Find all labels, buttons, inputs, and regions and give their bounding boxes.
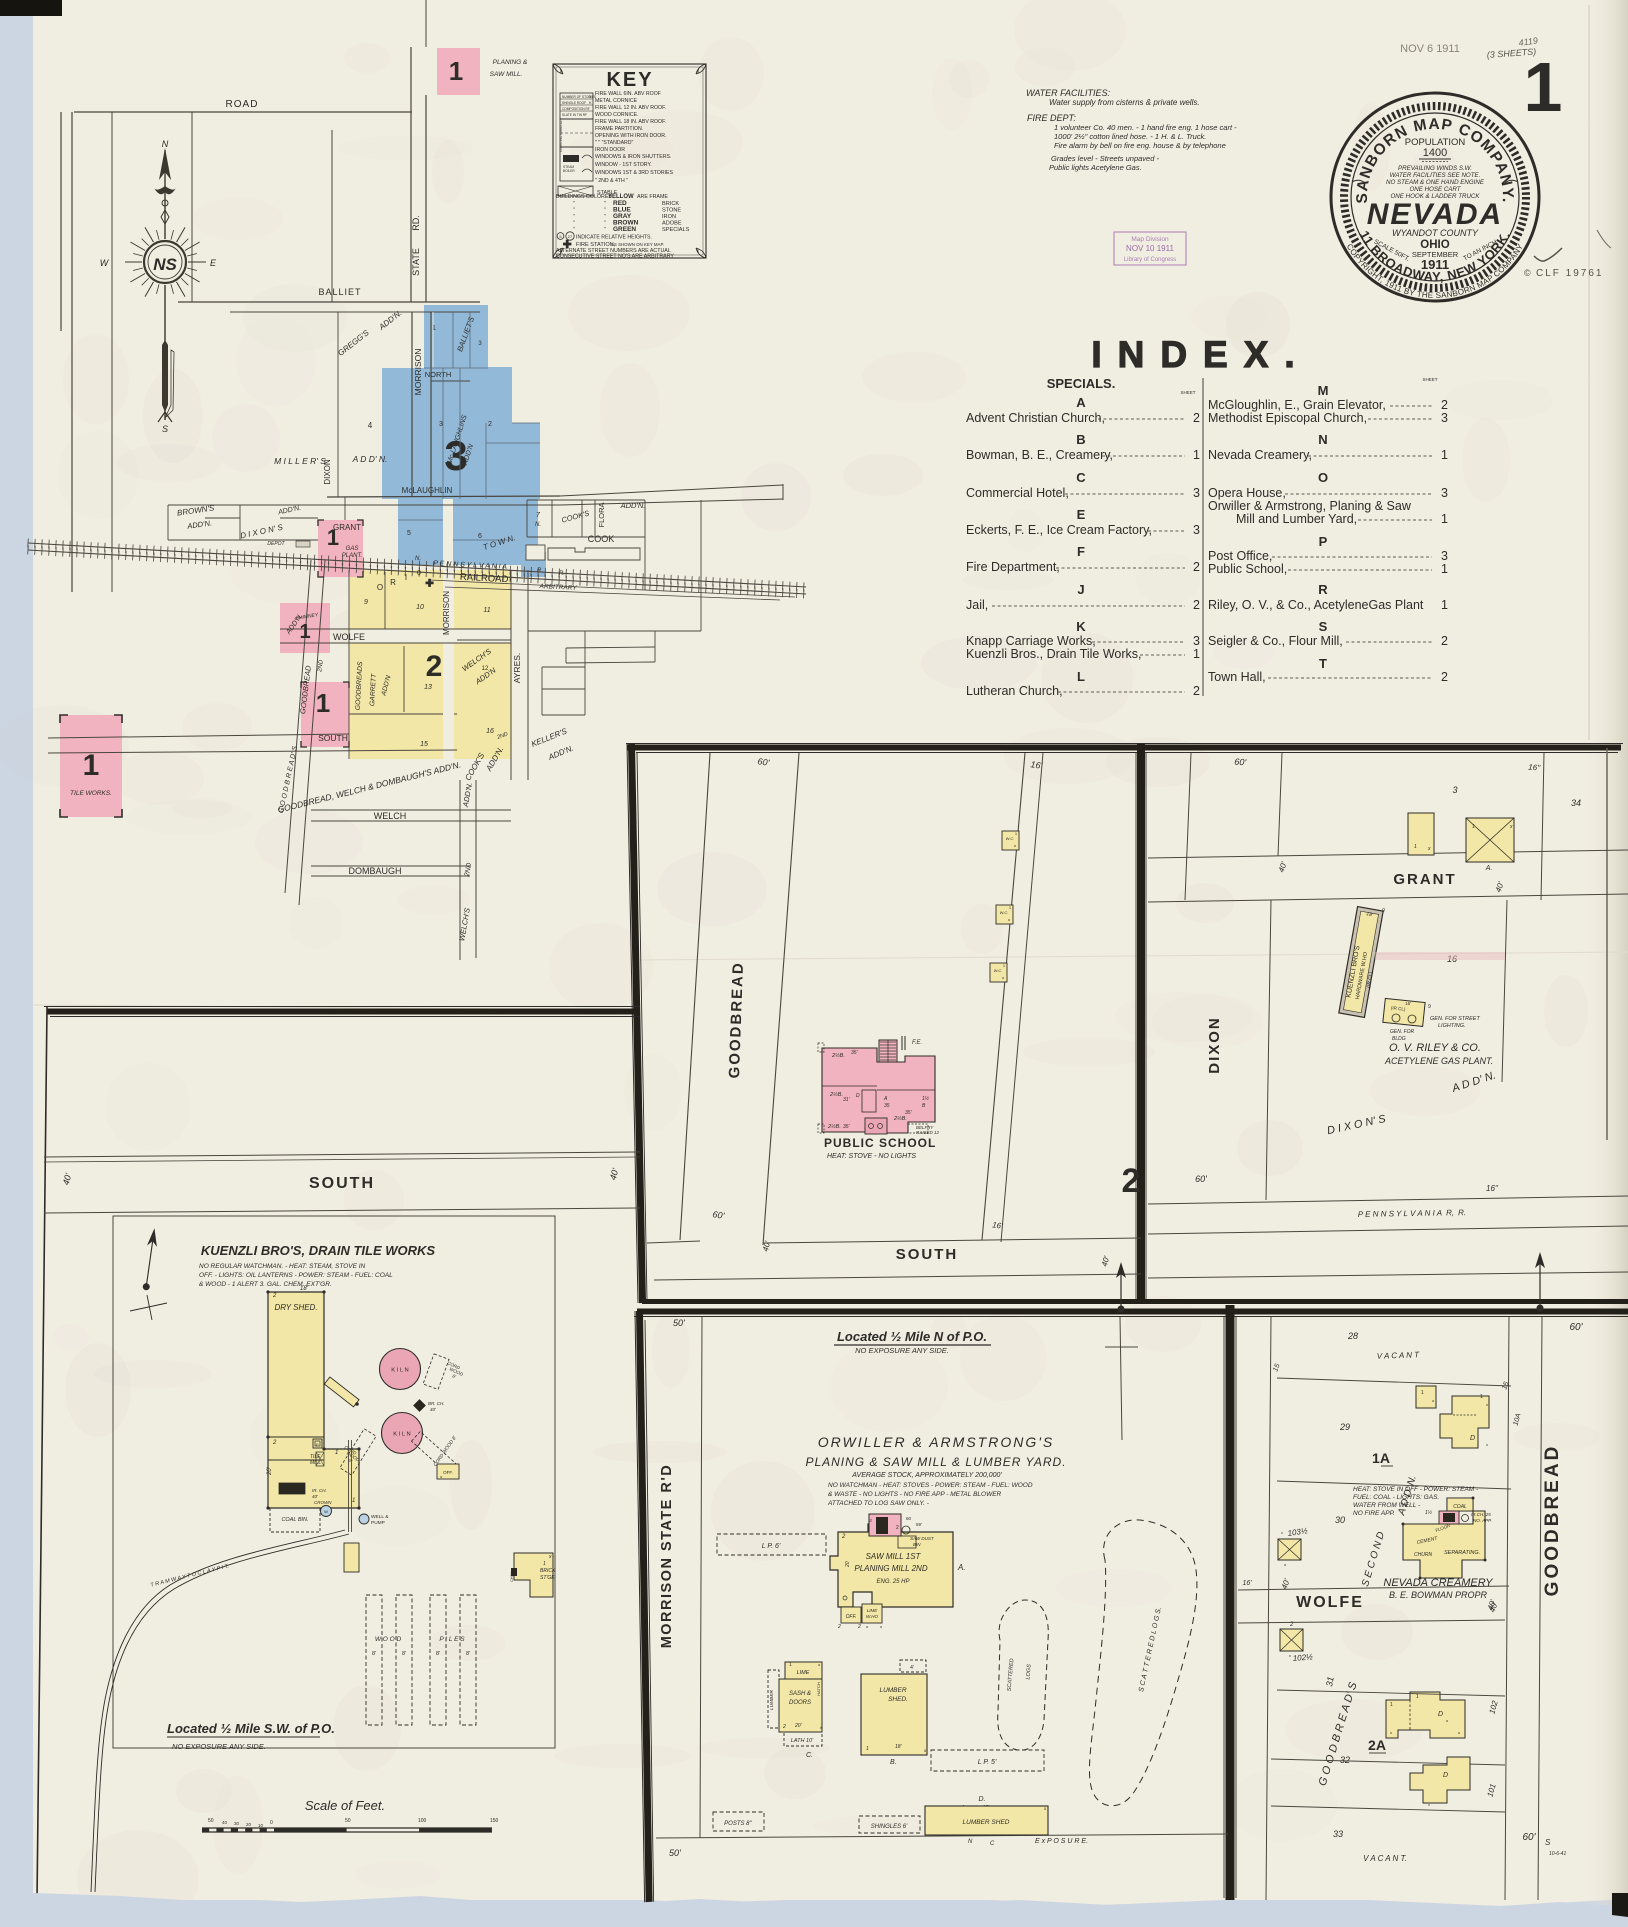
svg-text:OFF.: OFF. bbox=[846, 1614, 857, 1620]
svg-text:WINDOW - 1ST STORY.: WINDOW - 1ST STORY. bbox=[595, 162, 652, 168]
svg-text:Library of Congress: Library of Congress bbox=[1124, 257, 1176, 263]
svg-text:COOK: COOK bbox=[588, 534, 615, 544]
svg-text:LIGHTING.: LIGHTING. bbox=[1438, 1023, 1466, 1029]
svg-text:N: N bbox=[162, 139, 169, 149]
svg-text:1: 1 bbox=[1390, 1702, 1393, 1708]
svg-text:Riley, O. V., & Co., Acetylene: Riley, O. V., & Co., AcetyleneGas Plant bbox=[1208, 598, 1424, 612]
svg-text:A: A bbox=[883, 1096, 888, 1102]
svg-text:8': 8' bbox=[436, 1651, 440, 1657]
svg-text:2: 2 bbox=[1193, 560, 1200, 574]
svg-text:A.: A. bbox=[1485, 865, 1493, 872]
svg-text:HEAT: STOVE - NO LIGHTS: HEAT: STOVE - NO LIGHTS bbox=[827, 1153, 916, 1160]
svg-text:T: T bbox=[1319, 656, 1327, 671]
svg-text:1: 1 bbox=[1193, 647, 1200, 661]
svg-text:WOLFE: WOLFE bbox=[1296, 1594, 1364, 1611]
svg-text:SHEET: SHEET bbox=[1180, 390, 1195, 395]
svg-text:35': 35' bbox=[843, 1124, 851, 1130]
svg-text:2½B.: 2½B. bbox=[893, 1115, 907, 1122]
svg-text:GAS: GAS bbox=[346, 546, 359, 552]
svg-text:2½B.: 2½B. bbox=[831, 1052, 845, 1059]
svg-text:DEPOT: DEPOT bbox=[267, 541, 285, 547]
svg-text:OFF.: OFF. bbox=[443, 1470, 453, 1475]
svg-text:DIXON: DIXON bbox=[323, 459, 332, 485]
svg-text:1A: 1A bbox=[1372, 1450, 1390, 1466]
svg-text:16': 16' bbox=[1242, 1580, 1252, 1587]
svg-text:2: 2 bbox=[857, 1624, 861, 1630]
svg-text:STONE: STONE bbox=[662, 208, 681, 214]
svg-text:D: D bbox=[856, 1093, 860, 1099]
svg-text:": " bbox=[573, 201, 575, 207]
svg-text:KUENZLI BRO'S, DRAIN TILE WORK: KUENZLI BRO'S, DRAIN TILE WORKS bbox=[201, 1243, 436, 1258]
svg-text:SOUTH: SOUTH bbox=[309, 1175, 375, 1192]
svg-text:35: 35 bbox=[884, 1103, 890, 1109]
svg-text:40': 40' bbox=[430, 1407, 436, 1412]
svg-text:& WOOD - 1 ALERT 3. GAL. CHEM.: & WOOD - 1 ALERT 3. GAL. CHEM. EXT'GR. bbox=[199, 1281, 332, 1288]
svg-text:3: 3 bbox=[1193, 634, 1200, 648]
svg-text:16': 16' bbox=[992, 1220, 1004, 1230]
svg-text:1: 1 bbox=[1480, 1394, 1483, 1400]
svg-text:W.C.: W.C. bbox=[1006, 836, 1015, 841]
svg-text:J: J bbox=[1077, 582, 1084, 597]
svg-text:SOUTH: SOUTH bbox=[896, 1246, 959, 1263]
svg-text:1 volunteer Co. 40 men. - 1 ha: 1 volunteer Co. 40 men. - 1 hand fire en… bbox=[1054, 123, 1237, 132]
svg-text:S: S bbox=[1545, 1838, 1551, 1847]
svg-text:M: M bbox=[1318, 383, 1329, 398]
svg-text:20: 20 bbox=[845, 1561, 851, 1568]
svg-text:50: 50 bbox=[345, 1818, 351, 1824]
svg-text:0: 0 bbox=[417, 570, 421, 577]
svg-text:20: 20 bbox=[246, 1822, 252, 1827]
svg-text:1400: 1400 bbox=[1423, 147, 1447, 159]
svg-text:16'': 16'' bbox=[1486, 1184, 1498, 1193]
svg-text:9: 9 bbox=[364, 599, 368, 606]
svg-text:E: E bbox=[210, 258, 217, 268]
svg-text:32: 32 bbox=[1340, 1755, 1350, 1765]
svg-text:59': 59' bbox=[916, 1522, 922, 1527]
svg-text:BIN: BIN bbox=[913, 1542, 921, 1547]
svg-text:D: D bbox=[1443, 1772, 1448, 1779]
svg-text:P: P bbox=[1319, 534, 1328, 549]
svg-text:13: 13 bbox=[424, 684, 432, 691]
svg-text:x: x bbox=[1509, 824, 1513, 830]
svg-text:2: 2 bbox=[272, 1440, 277, 1446]
svg-text:BALLIET: BALLIET bbox=[318, 287, 361, 297]
svg-text:PUBLIC SCHOOL: PUBLIC SCHOOL bbox=[824, 1136, 936, 1150]
svg-text:NO. APP.: NO. APP. bbox=[1473, 1518, 1492, 1523]
svg-text:x: x bbox=[1281, 1530, 1283, 1535]
svg-text:1: 1 bbox=[335, 1450, 338, 1456]
svg-text:HEAT: STOVE IN OFF - POWER: ST: HEAT: STOVE IN OFF - POWER: STEAM - bbox=[1353, 1486, 1479, 1493]
svg-text:8': 8' bbox=[402, 1651, 406, 1657]
svg-text:KEY: KEY bbox=[606, 69, 653, 91]
svg-text:1½: 1½ bbox=[922, 1095, 930, 1102]
svg-text:NO WATCHMAN - HEAT: STOVES - P: NO WATCHMAN - HEAT: STOVES - POWER: STEA… bbox=[828, 1482, 1033, 1489]
svg-text:LIME: LIME bbox=[797, 1670, 810, 1676]
svg-text:PLANT.: PLANT. bbox=[342, 553, 363, 559]
svg-text:K: K bbox=[1076, 619, 1086, 634]
svg-text:L P. 5': L P. 5' bbox=[978, 1759, 997, 1766]
svg-text:R.: R. bbox=[559, 571, 565, 577]
svg-text:P I L E S: P I L E S bbox=[439, 1636, 465, 1643]
svg-text:x: x bbox=[1289, 1653, 1291, 1658]
svg-text:6: 6 bbox=[478, 533, 482, 540]
svg-text:Knapp Carriage Works,: Knapp Carriage Works, bbox=[966, 634, 1096, 648]
svg-text:60': 60' bbox=[1522, 1832, 1536, 1843]
svg-text:Map Division: Map Division bbox=[1131, 236, 1169, 243]
svg-text:W: W bbox=[324, 1509, 328, 1514]
svg-text:GEN. FOR STREET: GEN. FOR STREET bbox=[1430, 1016, 1480, 1022]
svg-text:2: 2 bbox=[1441, 398, 1448, 412]
svg-text:30: 30 bbox=[234, 1821, 240, 1826]
svg-text:C: C bbox=[1076, 470, 1086, 485]
svg-text:N.: N. bbox=[535, 522, 541, 528]
svg-text:WINDOWS & IRON SHUTTERS.: WINDOWS & IRON SHUTTERS. bbox=[595, 154, 671, 160]
svg-text:1: 1 bbox=[1441, 512, 1448, 526]
svg-text:31: 31 bbox=[1324, 1676, 1336, 1688]
svg-text:": " bbox=[573, 227, 575, 233]
svg-text:SAW MILL 1ST: SAW MILL 1ST bbox=[866, 1552, 922, 1561]
svg-text:1: 1 bbox=[1414, 844, 1417, 850]
svg-text:2: 2 bbox=[426, 650, 443, 683]
svg-text:2: 2 bbox=[1289, 1622, 1294, 1628]
svg-text:R: R bbox=[390, 578, 396, 587]
svg-text:D: D bbox=[1470, 1435, 1475, 1442]
svg-text:NO STEAM & ONE HAND ENGINE: NO STEAM & ONE HAND ENGINE bbox=[1386, 179, 1485, 186]
svg-text:NO FIRE APP.: NO FIRE APP. bbox=[1353, 1510, 1395, 1517]
svg-text:V A C A N T: V A C A N T bbox=[1377, 1350, 1421, 1361]
svg-text:": " bbox=[604, 221, 606, 227]
svg-text:CROWN: CROWN bbox=[314, 1500, 332, 1505]
svg-text:CHURN: CHURN bbox=[1414, 1552, 1432, 1558]
svg-text:& WASTE - NO LIGHTS - NO FIRE: & WASTE - NO LIGHTS - NO FIRE APP - META… bbox=[828, 1491, 1002, 1498]
svg-text:2: 2 bbox=[896, 1525, 899, 1531]
svg-text:INDEX.: INDEX. bbox=[1091, 334, 1310, 375]
svg-text:E x P O S U R E.: E x P O S U R E. bbox=[1035, 1838, 1088, 1845]
svg-text:0: 0 bbox=[270, 1820, 273, 1826]
svg-text:OPENING WITH IRON DOOR.: OPENING WITH IRON DOOR. bbox=[595, 133, 666, 139]
svg-text:27: 27 bbox=[568, 234, 573, 239]
svg-text:1: 1 bbox=[299, 621, 310, 643]
svg-text:x: x bbox=[548, 1554, 552, 1560]
svg-text:2: 2 bbox=[1441, 634, 1448, 648]
svg-text:16': 16' bbox=[1030, 759, 1043, 771]
svg-text:ADOBE: ADOBE bbox=[662, 221, 682, 227]
svg-text:SOUTH: SOUTH bbox=[318, 733, 348, 743]
svg-text:E: E bbox=[316, 1442, 319, 1447]
svg-text:A D D' N.: A D D' N. bbox=[352, 454, 388, 464]
svg-text:RAISED 12: RAISED 12 bbox=[916, 1130, 940, 1135]
svg-text:SHED.: SHED. bbox=[888, 1696, 908, 1703]
svg-text:O: O bbox=[1318, 470, 1328, 485]
svg-text:": " bbox=[573, 214, 575, 220]
svg-text:NO REGULAR WATCHMAN. - HEAT: S: NO REGULAR WATCHMAN. - HEAT: STEAM, STOV… bbox=[199, 1263, 366, 1270]
svg-text:" 2ND & 4TH ": " 2ND & 4TH " bbox=[595, 178, 628, 184]
svg-text:3: 3 bbox=[1193, 523, 1200, 537]
svg-text:B.: B. bbox=[890, 1759, 897, 1766]
svg-text:35': 35' bbox=[851, 1050, 859, 1056]
svg-text:1: 1 bbox=[352, 1498, 355, 1504]
svg-text:STATE: STATE bbox=[411, 248, 421, 276]
svg-text:": " bbox=[604, 214, 606, 220]
svg-text:WINDOWS 1ST & 3RD STORIES: WINDOWS 1ST & 3RD STORIES bbox=[595, 170, 673, 176]
svg-text:K I L N: K I L N bbox=[393, 1432, 411, 1438]
svg-text:WYANDOT COUNTY: WYANDOT COUNTY bbox=[1392, 228, 1479, 238]
svg-text:LUMBER: LUMBER bbox=[769, 1689, 775, 1710]
svg-text:ENG. 25 HP: ENG. 25 HP bbox=[876, 1579, 909, 1585]
svg-text:BRICK: BRICK bbox=[540, 1568, 556, 1574]
svg-text:RD.: RD. bbox=[411, 215, 421, 231]
svg-text:1: 1 bbox=[543, 1561, 546, 1567]
svg-text:N: N bbox=[968, 1839, 973, 1845]
svg-text:3: 3 bbox=[439, 421, 443, 428]
svg-text:3: 3 bbox=[1441, 411, 1448, 425]
svg-text:OFF. - LIGHTS: OIL LANTERNS -: OFF. - LIGHTS: OIL LANTERNS - POWER: STE… bbox=[199, 1272, 393, 1279]
svg-text:1: 1 bbox=[316, 688, 330, 718]
svg-text:METAL CORNICE: METAL CORNICE bbox=[595, 98, 638, 104]
svg-text:18': 18' bbox=[300, 1286, 309, 1292]
svg-text:Opera House,: Opera House, bbox=[1208, 486, 1286, 500]
svg-text:Public School,: Public School, bbox=[1208, 562, 1287, 576]
svg-text:NS: NS bbox=[153, 255, 177, 274]
svg-text:60': 60' bbox=[712, 1209, 725, 1221]
svg-text:10-6-41: 10-6-41 bbox=[1549, 1851, 1566, 1857]
svg-text:A: A bbox=[1076, 395, 1086, 410]
svg-text:Mill and Lumber Yard,: Mill and Lumber Yard, bbox=[1236, 512, 1357, 526]
svg-text:4: 4 bbox=[368, 421, 373, 430]
svg-text:3: 3 bbox=[1441, 486, 1448, 500]
svg-text:Located ½ Mile N of P.O.: Located ½ Mile N of P.O. bbox=[837, 1329, 987, 1344]
svg-text:K I L N: K I L N bbox=[391, 1368, 409, 1374]
svg-text:33: 33 bbox=[1333, 1829, 1343, 1839]
svg-text:20': 20' bbox=[794, 1723, 803, 1729]
svg-text:D.: D. bbox=[979, 1796, 986, 1803]
svg-text:Seigler & Co., Flour Mill,: Seigler & Co., Flour Mill, bbox=[1208, 634, 1343, 648]
svg-text:": " bbox=[573, 208, 575, 214]
svg-text:": " bbox=[604, 208, 606, 214]
svg-text:1: 1 bbox=[866, 1746, 869, 1752]
svg-text:1: 1 bbox=[83, 749, 100, 782]
svg-text:FIRE DEPT:: FIRE DEPT: bbox=[1027, 113, 1076, 123]
svg-text:Town Hall,: Town Hall, bbox=[1208, 670, 1266, 684]
svg-text:12: 12 bbox=[482, 666, 489, 672]
svg-text:CHIM: CHIM bbox=[510, 1572, 514, 1582]
svg-text:WELL &: WELL & bbox=[371, 1514, 389, 1520]
svg-text:1911: 1911 bbox=[1421, 257, 1449, 272]
svg-text:60': 60' bbox=[1234, 757, 1247, 768]
svg-text:Orwiller & Armstrong, Planing: Orwiller & Armstrong, Planing & Saw bbox=[1208, 499, 1412, 513]
svg-text:L P. 6': L P. 6' bbox=[762, 1543, 781, 1550]
svg-text:WOLFE: WOLFE bbox=[333, 632, 365, 642]
svg-text:DOORS: DOORS bbox=[789, 1700, 811, 1706]
svg-text:1: 1 bbox=[1421, 1390, 1424, 1396]
svg-text:2: 2 bbox=[488, 421, 492, 428]
svg-text:BR. CH.: BR. CH. bbox=[428, 1401, 445, 1406]
svg-text:WOOD CORNICE.: WOOD CORNICE. bbox=[595, 112, 639, 118]
svg-text:LUMBER SHED: LUMBER SHED bbox=[963, 1819, 1010, 1826]
svg-text:2: 2 bbox=[1441, 670, 1448, 684]
svg-text:10: 10 bbox=[416, 604, 424, 611]
svg-text:2½B.: 2½B. bbox=[827, 1123, 841, 1130]
svg-text:C.: C. bbox=[806, 1752, 813, 1759]
svg-text:3: 3 bbox=[444, 432, 467, 479]
svg-text:9: 9 bbox=[1382, 908, 1385, 914]
svg-text:NEVADA: NEVADA bbox=[1367, 198, 1503, 231]
svg-text:McGloughlin, E., Grain Elevato: McGloughlin, E., Grain Elevator, bbox=[1208, 398, 1386, 412]
svg-text:60': 60' bbox=[1569, 1322, 1583, 1333]
svg-text:FRAME PARTITION.: FRAME PARTITION. bbox=[595, 126, 643, 132]
svg-text:CLF 19761: CLF 19761 bbox=[1536, 268, 1603, 279]
svg-text:31': 31' bbox=[843, 1097, 851, 1103]
svg-text:150: 150 bbox=[490, 1818, 499, 1824]
svg-text:COAL BIN.: COAL BIN. bbox=[281, 1517, 308, 1523]
svg-text:©: © bbox=[1524, 268, 1531, 278]
svg-text:1: 1 bbox=[327, 525, 339, 550]
svg-text:x: x bbox=[1428, 1802, 1430, 1807]
svg-text:11: 11 bbox=[483, 607, 490, 614]
svg-text:x: x bbox=[1486, 1402, 1488, 1407]
svg-text:FUEL: COAL - LIGHTS: GAS.: FUEL: COAL - LIGHTS: GAS. bbox=[1353, 1494, 1439, 1501]
svg-text:B: B bbox=[1076, 432, 1085, 447]
svg-text:SHEET: SHEET bbox=[1422, 377, 1437, 382]
svg-text:3: 3 bbox=[1193, 486, 1200, 500]
svg-text:ACETYLENE GAS PLANT.: ACETYLENE GAS PLANT. bbox=[1384, 1056, 1493, 1066]
svg-text:NO EXPOSURE ANY SIDE.: NO EXPOSURE ANY SIDE. bbox=[172, 1742, 266, 1751]
svg-text:2: 2 bbox=[272, 1293, 277, 1299]
svg-text:PLANING & SAW MILL & LUMBER YA: PLANING & SAW MILL & LUMBER YARD. bbox=[805, 1455, 1066, 1469]
svg-text:60': 60' bbox=[757, 756, 770, 768]
svg-text:A.: A. bbox=[957, 1563, 966, 1572]
svg-text:DRY SHED.: DRY SHED. bbox=[274, 1303, 317, 1312]
svg-text:3: 3 bbox=[1452, 785, 1457, 795]
svg-text:ONE HOSE CART: ONE HOSE CART bbox=[1409, 186, 1461, 193]
svg-text:N: N bbox=[868, 1519, 873, 1522]
svg-text:Methodist Episcopal Church,: Methodist Episcopal Church, bbox=[1208, 411, 1367, 425]
svg-text:Post Office,: Post Office, bbox=[1208, 549, 1272, 563]
svg-text:Grades level - Streets unpaved: Grades level - Streets unpaved - bbox=[1051, 154, 1159, 163]
svg-text:IR. CH.: IR. CH. bbox=[312, 1488, 327, 1493]
svg-text:ORWILLER & ARMSTRONG'S: ORWILLER & ARMSTRONG'S bbox=[818, 1434, 1054, 1450]
svg-text:O. V. RILEY & CO.: O. V. RILEY & CO. bbox=[1389, 1042, 1481, 1054]
svg-text:LIME: LIME bbox=[867, 1608, 879, 1613]
svg-text:Water supply from cisterns & p: Water supply from cisterns & private wel… bbox=[1049, 98, 1200, 107]
svg-text:60: 60 bbox=[906, 1516, 912, 1521]
svg-text:3: 3 bbox=[1441, 549, 1448, 563]
svg-text:B. E. BOWMAN PROPR: B. E. BOWMAN PROPR bbox=[1389, 1590, 1488, 1600]
svg-text:2: 2 bbox=[841, 1534, 846, 1540]
svg-text:": " bbox=[604, 201, 606, 207]
svg-text:I: I bbox=[405, 573, 407, 582]
svg-text:COAL: COAL bbox=[1453, 1504, 1467, 1510]
svg-text:2A: 2A bbox=[1368, 1737, 1386, 1753]
svg-text:L: L bbox=[1077, 669, 1085, 684]
svg-text:V A C A N T.: V A C A N T. bbox=[1363, 1854, 1407, 1863]
svg-text:SLATE IN TIN RF: SLATE IN TIN RF bbox=[562, 113, 587, 117]
svg-text:Lutheran Church,: Lutheran Church, bbox=[966, 684, 1063, 698]
svg-text:D: D bbox=[1438, 1711, 1443, 1718]
svg-text:1: 1 bbox=[1416, 1694, 1419, 1700]
svg-text:34: 34 bbox=[1571, 798, 1581, 808]
svg-text:F: F bbox=[1077, 544, 1085, 559]
svg-text:R: R bbox=[1318, 582, 1328, 597]
svg-text:1: 1 bbox=[789, 1662, 792, 1668]
svg-text:Public lights Acetylene Gas.: Public lights Acetylene Gas. bbox=[1049, 163, 1142, 172]
svg-text:Located ½ Mile S.W. of P.O.: Located ½ Mile S.W. of P.O. bbox=[167, 1721, 335, 1736]
svg-text:102½: 102½ bbox=[1292, 1652, 1313, 1663]
svg-text:LATH 10': LATH 10' bbox=[791, 1738, 814, 1744]
svg-text:Bowman, B. E., Creamery,: Bowman, B. E., Creamery, bbox=[966, 448, 1113, 462]
svg-text:TILE WORKS.: TILE WORKS. bbox=[70, 790, 112, 797]
svg-text:SAW DUST: SAW DUST bbox=[910, 1536, 935, 1541]
svg-text:40: 40 bbox=[222, 1820, 228, 1825]
svg-text:W.C.: W.C. bbox=[994, 968, 1003, 973]
svg-text:16'': 16'' bbox=[1528, 763, 1541, 773]
svg-text:1: 1 bbox=[1441, 598, 1448, 612]
svg-text:DIXON: DIXON bbox=[1206, 1016, 1223, 1074]
svg-text:IR.CH. 25: IR.CH. 25 bbox=[1471, 1512, 1491, 1517]
svg-text:50: 50 bbox=[208, 1818, 214, 1824]
svg-text:2: 2 bbox=[782, 1724, 786, 1730]
svg-text:INDICATE RELATIVE HEIGHTS.: INDICATE RELATIVE HEIGHTS. bbox=[576, 235, 652, 241]
svg-text:ATTACHED TO LOG SAW ONLY. -: ATTACHED TO LOG SAW ONLY. - bbox=[827, 1500, 930, 1507]
svg-text:15': 15' bbox=[1405, 1001, 1411, 1006]
svg-text:Scale of Feet.: Scale of Feet. bbox=[305, 1798, 385, 1813]
svg-text:SPECIALS.: SPECIALS. bbox=[1047, 376, 1116, 391]
svg-text:WATER FACILITIES SEE NOTE.: WATER FACILITIES SEE NOTE. bbox=[1390, 172, 1481, 179]
svg-text:2: 2 bbox=[1193, 598, 1200, 612]
svg-text:1: 1 bbox=[1524, 48, 1563, 126]
svg-text:PLANING &: PLANING & bbox=[493, 59, 528, 66]
svg-text:Commercial Hotel,: Commercial Hotel, bbox=[966, 486, 1069, 500]
svg-text:SHINGLES 6': SHINGLES 6' bbox=[871, 1824, 908, 1830]
svg-text:100: 100 bbox=[418, 1818, 427, 1824]
svg-text:P E N N S Y L V A N I A R, R.: P E N N S Y L V A N I A R, R. bbox=[1358, 1208, 1466, 1219]
svg-text:x: x bbox=[1486, 1442, 1488, 1447]
svg-text:2: 2 bbox=[1193, 684, 1200, 698]
svg-text:IRON: IRON bbox=[662, 214, 676, 220]
svg-text:Eckerts, F. E., Ice Cream Fact: Eckerts, F. E., Ice Cream Factory, bbox=[966, 523, 1152, 537]
svg-text:2: 2 bbox=[1193, 411, 1200, 425]
svg-text:W.HO: W.HO bbox=[866, 1614, 879, 1619]
svg-text:WELCH: WELCH bbox=[374, 811, 407, 821]
svg-text:1: 1 bbox=[1472, 824, 1475, 830]
svg-text:SHINGLE ROOF: SHINGLE ROOF bbox=[562, 101, 586, 105]
svg-text:" " "STANDARD": " " "STANDARD" bbox=[595, 140, 634, 146]
svg-text:Fire Department,: Fire Department, bbox=[966, 560, 1060, 574]
svg-text:20': 20' bbox=[267, 1466, 273, 1476]
svg-text:ADD'N.: ADD'N. bbox=[620, 501, 646, 510]
svg-text:28: 28 bbox=[1347, 1331, 1358, 1341]
svg-text:MORRISON STATE R'D: MORRISON STATE R'D bbox=[659, 1464, 675, 1649]
svg-text:18': 18' bbox=[895, 1744, 903, 1750]
svg-text:1: 1 bbox=[1441, 448, 1448, 462]
svg-text:HATCH: HATCH bbox=[816, 1682, 821, 1696]
svg-text:MORRISON: MORRISON bbox=[442, 591, 451, 635]
svg-text:PLANING MILL 2ND: PLANING MILL 2ND bbox=[854, 1564, 927, 1573]
svg-text:1½: 1½ bbox=[1425, 1509, 1433, 1516]
svg-text:1: 1 bbox=[449, 56, 463, 86]
svg-text:WATER FACILITIES:: WATER FACILITIES: bbox=[1026, 88, 1111, 98]
svg-text:8': 8' bbox=[372, 1651, 376, 1657]
svg-text:NOV 6 1911: NOV 6 1911 bbox=[1400, 43, 1460, 55]
svg-text:16: 16 bbox=[486, 728, 494, 735]
svg-text:15: 15 bbox=[420, 741, 428, 748]
svg-text:30: 30 bbox=[1335, 1515, 1345, 1525]
svg-text:Nevada Creamery,: Nevada Creamery, bbox=[1208, 448, 1312, 462]
svg-text:": " bbox=[573, 221, 575, 227]
svg-text:GEN. FOR: GEN. FOR bbox=[1390, 1029, 1415, 1035]
svg-text:SPECIALS: SPECIALS bbox=[662, 227, 690, 233]
svg-text:8': 8' bbox=[466, 1651, 470, 1657]
